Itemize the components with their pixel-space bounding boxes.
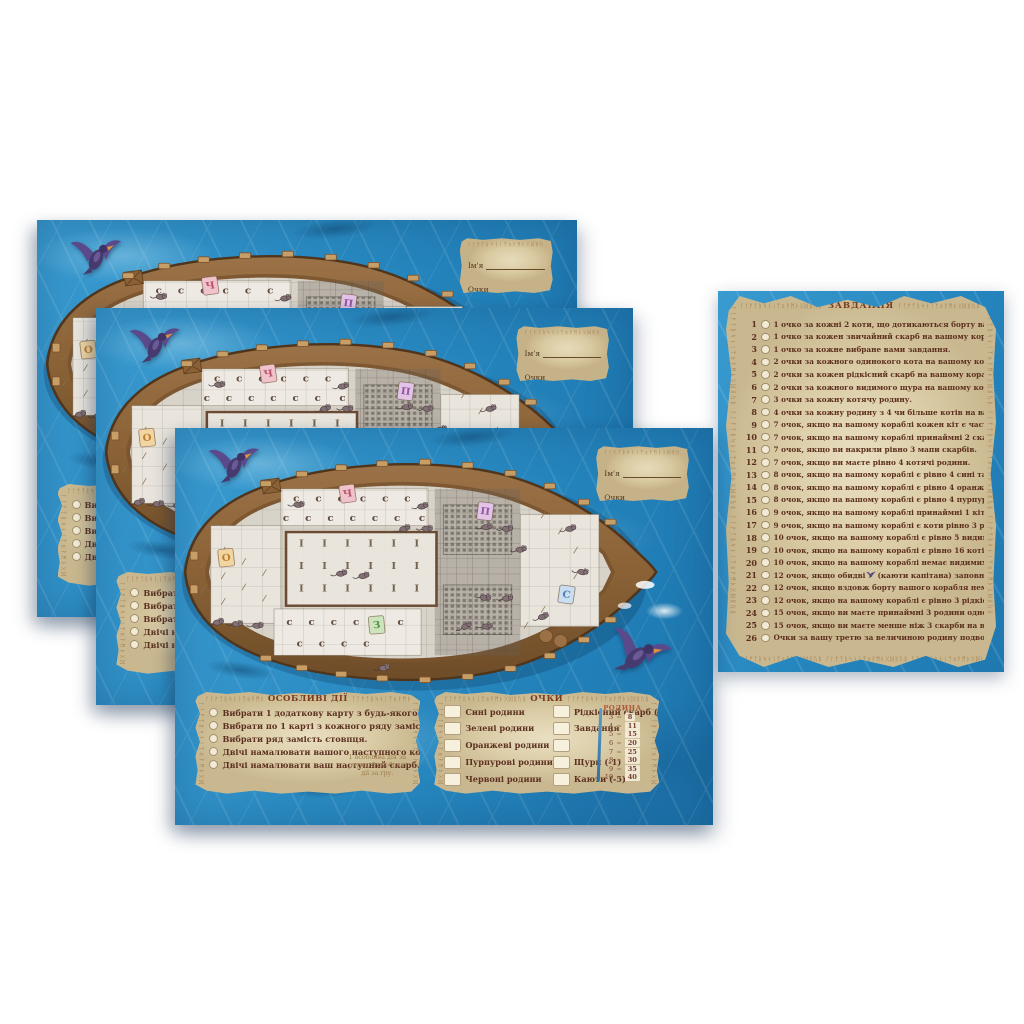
task-row: 148 очок, якщо на вашому кораблі є рівно… <box>742 481 984 494</box>
task-text: 8 очок, якщо на вашому кораблі є рівно 4… <box>774 483 985 492</box>
task-row: 73 очки за кожну котячу родину. <box>742 393 984 406</box>
task-number: 19 <box>742 545 757 555</box>
score-write-box[interactable] <box>444 722 461 735</box>
name-field-label: Ім'я <box>604 469 620 478</box>
task-checkbox[interactable] <box>761 483 770 492</box>
letter-tile-С: С <box>558 585 576 604</box>
rune-border: ᚴᛚᚠᛏᚱᛋᚾᛁᛉᛟᚹᛗᚦᚷᛞᛝᚢᛒ ᚴᛚᚠᛏᚱᛋᚾᛁᛉᛟᚹᛗᚦᚷᛞᛝᚢᛒ ᚴᛚ… <box>729 306 736 657</box>
action-bullet[interactable] <box>72 500 81 509</box>
task-text: 1 очко за кожне вибране вами завдання. <box>774 345 951 354</box>
svg-text:c: c <box>204 393 210 404</box>
svg-text:c: c <box>287 617 293 628</box>
svg-text:П: П <box>480 506 491 518</box>
player-board: //////////////////cccccccccccccccccccccc… <box>175 428 713 825</box>
svg-text:c: c <box>419 513 425 524</box>
name-score-box: ᚴᛚᚠᛏᚱᛋᚾᛁᛉᛟᚹᛗᚦᚷᛞᛝᚢᛒ Ім'я Очки <box>596 446 689 501</box>
svg-text:I: I <box>392 583 397 594</box>
task-number: 13 <box>742 470 757 480</box>
family-score-row: Сині родини <box>444 705 553 718</box>
svg-text:c: c <box>223 286 229 297</box>
svg-text:c: c <box>328 513 334 524</box>
bird-mascot-icon <box>207 446 261 486</box>
task-text: Очки за вашу третю за величиною родину п… <box>774 633 985 642</box>
task-text: 4 очки за кожну родину з 4 чи більше кот… <box>774 408 985 417</box>
name-field-label: Ім'я <box>524 349 540 358</box>
task-checkbox[interactable] <box>761 521 770 530</box>
letter-tile-О: О <box>139 428 156 447</box>
task-row: 84 очки за кожну родину з 4 чи більше ко… <box>742 406 984 419</box>
family-points: 35 <box>625 765 640 773</box>
equals-sign: = <box>616 739 622 747</box>
family-size: 9 <box>603 765 613 773</box>
family-size: 8 <box>603 756 613 764</box>
equals-sign: = <box>616 765 622 773</box>
action-bullet[interactable] <box>209 760 218 769</box>
task-text: 12 очок, якщо обидві (каюти капітана) за… <box>774 571 985 580</box>
svg-text:c: c <box>268 286 274 297</box>
svg-text:c: c <box>394 513 400 524</box>
tasks-parchment: ᚴᛚᚠᛏᚱᛋᚾᛁᛉᛟᚹᛗᚦᚷᛞᛝᚢᛒ ᚴᛚᚠᛏᚱᛋᚾᛁᛉᛟᚹᛗᚦᚷᛞᛝᚢᛒ ᚴᛚ… <box>726 296 996 667</box>
family-score-row: Пурпурові родини <box>444 756 553 769</box>
action-item: Вибрати 1 додаткову карту з будь-якого і… <box>209 706 406 719</box>
svg-text:c: c <box>271 393 277 404</box>
svg-text:c: c <box>297 639 303 650</box>
svg-text:c: c <box>382 494 388 505</box>
svg-text:Ч: Ч <box>263 368 274 380</box>
task-row: 169 очок, якщо на вашому кораблі принайм… <box>742 506 984 519</box>
action-bullet[interactable] <box>209 708 218 717</box>
task-checkbox[interactable] <box>761 395 770 404</box>
task-checkbox[interactable] <box>761 508 770 517</box>
rune-border: ᚴᛚᚠᛏᚱᛋᚾᛁᛉᛟᚹᛗᚦᚷᛞᛝᚢᛒ ᚴᛚᚠᛏᚱᛋᚾᛁᛉᛟᚹᛗᚦᚷᛞᛝᚢᛒ ᚴᛚ… <box>740 656 982 663</box>
family-row-label: Зелені родини <box>465 723 534 733</box>
action-item: Вибрати по 1 карті з кожного ряду заміст… <box>209 719 406 732</box>
letter-tile-Ч: Ч <box>260 364 278 383</box>
score-write-box[interactable] <box>553 739 570 752</box>
svg-text:c: c <box>316 494 322 505</box>
equals-sign: = <box>616 756 622 764</box>
svg-text:c: c <box>331 617 337 628</box>
task-row: 2312 очок, якщо на вашому кораблі є рівн… <box>742 594 984 607</box>
task-number: 4 <box>742 357 757 367</box>
task-row: 2415 очок, якщо ви маєте принаймні 3 род… <box>742 607 984 620</box>
svg-text:Ч: Ч <box>343 488 354 500</box>
letter-tile-Ч: Ч <box>339 484 357 503</box>
special-actions-note: 1 особлива дія за раунд, 3 особливі дії … <box>346 754 408 778</box>
task-text: 15 очок, якщо ви маєте принаймні 3 родин… <box>774 608 985 617</box>
special-actions-panel: ᚴᛚᚠᛏᚱᛋᚾᛁᛉᛟᚹᛗᚦᚷᛞᛝᚢᛒ ᚴᛚᚠᛏᚱᛋᚾᛁᛉᛟᚹᛗᚦᚷᛞᛝᚢᛒ ОС… <box>195 692 420 794</box>
task-checkbox[interactable] <box>761 345 770 354</box>
letter-tile-О: О <box>80 340 97 359</box>
task-text: 2 очки за кожного видимого щура на вашом… <box>774 383 985 392</box>
family-table-row: 3=8 <box>603 713 653 722</box>
score-write-box[interactable] <box>444 773 461 786</box>
task-row: 1810 очок, якщо на вашому кораблі є рівн… <box>742 531 984 544</box>
name-field-line[interactable] <box>486 260 544 270</box>
svg-text:c: c <box>372 513 378 524</box>
svg-text:c: c <box>248 393 254 404</box>
task-text: 10 очок, якщо на вашому кораблі немає ви… <box>774 558 985 567</box>
points-title: ОЧКИ <box>530 694 563 704</box>
special-actions-title: ОСОБЛИВІ ДІЇ <box>268 694 348 704</box>
task-number: 2 <box>742 332 757 342</box>
svg-text:c: c <box>360 494 366 505</box>
svg-text:П: П <box>400 386 411 398</box>
svg-text:c: c <box>293 393 299 404</box>
bird-mascot-icon <box>866 571 876 579</box>
task-row: 21 очко за кожен звичайний скарб на вашо… <box>742 331 984 344</box>
task-text: 8 очок, якщо на вашому кораблі є рівно 4… <box>774 470 985 479</box>
svg-text:I: I <box>322 561 327 572</box>
action-bullet[interactable] <box>130 640 139 649</box>
family-size: 5 <box>603 730 613 738</box>
name-field-label: Ім'я <box>468 261 484 270</box>
svg-text:З: З <box>373 620 381 631</box>
task-checkbox[interactable] <box>761 433 770 442</box>
task-checkbox[interactable] <box>761 420 770 429</box>
task-text: 7 очок, якщо на вашому кораблі принаймні… <box>774 433 985 442</box>
family-score-row: Оранжеві родини <box>444 739 553 752</box>
family-row-label: Оранжеві родини <box>465 740 549 750</box>
task-number: 3 <box>742 344 757 354</box>
task-row: 42 очки за кожного одинокого кота на ваш… <box>742 356 984 369</box>
svg-text:I: I <box>369 583 374 594</box>
score-write-box[interactable] <box>553 756 570 769</box>
task-text: 1 очко за кожен звичайний скарб на вашом… <box>774 332 985 341</box>
tasks-list: 11 очко за кожні 2 коти, що дотикаються … <box>742 318 984 644</box>
task-text: 9 очок, якщо на вашому кораблі є коти рі… <box>774 521 985 530</box>
task-row: 117 очок, якщо ви накрили рівно 3 мапи с… <box>742 443 984 456</box>
family-score-row: Зелені родини <box>444 722 553 735</box>
task-text: 12 очок, якщо вздовж борту вашого корабл… <box>774 583 985 592</box>
rune-border: ᚴᛚᚠᛏᚱᛋᚾᛁᛉᛟᚹᛗᚦᚷᛞᛝᚢᛒ ᚴᛚᚠᛏᚱᛋᚾᛁᛉᛟᚹᛗᚦᚷᛞᛝᚢᛒ <box>567 696 649 703</box>
rune-border: ᚴᛚᚠᛏᚱᛋᚾᛁᛉᛟᚹᛗᚦᚷᛞᛝᚢᛒ ᚴᛚᚠᛏᚱᛋᚾᛁᛉᛟᚹᛗᚦᚷᛞᛝᚢᛒ ᚴᛚ… <box>898 303 982 310</box>
score-write-box[interactable] <box>444 739 461 752</box>
task-checkbox[interactable] <box>761 370 770 379</box>
rune-border: ᚴᛚᚠᛏᚱᛋᚾᛁᛉᛟᚹᛗᚦᚷᛞᛝᚢᛒ ᚴᛚᚠᛏᚱᛋᚾᛁᛉᛟᚹᛗᚦᚷᛞᛝᚢᛒ <box>444 696 526 703</box>
letter-tile-З: З <box>369 615 386 634</box>
task-checkbox[interactable] <box>761 320 770 329</box>
svg-text:c: c <box>281 374 287 385</box>
task-row: 2212 очок, якщо вздовж борту вашого кора… <box>742 581 984 594</box>
svg-text:c: c <box>283 513 289 524</box>
family-table-row: 9=35 <box>603 765 653 774</box>
family-points: 25 <box>625 748 640 756</box>
svg-text:I: I <box>299 539 304 550</box>
action-bullet[interactable] <box>130 627 139 636</box>
svg-text:I: I <box>369 539 374 550</box>
ship-illustration: //////////////////cccccccccccccccccccccc… <box>180 452 659 692</box>
score-write-box[interactable] <box>553 773 570 786</box>
svg-text:I: I <box>392 561 397 572</box>
name-field-line[interactable] <box>623 468 681 478</box>
family-table-row: 8=30 <box>603 756 653 765</box>
task-checkbox[interactable] <box>761 496 770 505</box>
name-field-line[interactable] <box>543 348 601 358</box>
score-write-box[interactable] <box>553 722 570 735</box>
svg-text:I: I <box>346 583 351 594</box>
task-row: 2112 очок, якщо обидві (каюти капітана) … <box>742 569 984 582</box>
task-number: 7 <box>742 395 757 405</box>
family-points: 15 <box>625 730 640 738</box>
task-checkbox[interactable] <box>761 471 770 480</box>
svg-text:c: c <box>236 374 242 385</box>
svg-text:I: I <box>322 539 327 550</box>
task-text: 12 очок, якщо на вашому кораблі є рівно … <box>774 596 985 605</box>
equals-sign: = <box>616 722 622 730</box>
task-number: 20 <box>742 558 757 568</box>
svg-text:I: I <box>322 583 327 594</box>
task-checkbox[interactable] <box>761 358 770 367</box>
action-bullet[interactable] <box>72 539 81 548</box>
svg-text:c: c <box>306 513 312 524</box>
action-bullet[interactable] <box>209 747 218 756</box>
svg-text:c: c <box>341 639 347 650</box>
product-photo-stage: //////////////////cccccccccccccccccccccc… <box>0 0 1024 1024</box>
action-label: Вибрати ряд замість стовпця. <box>222 734 367 744</box>
task-number: 9 <box>742 420 757 430</box>
family-table-title: РОДИНА <box>603 704 653 712</box>
bird-mascot-icon <box>128 326 182 366</box>
action-item: Вибрати ряд замість стовпця. <box>209 732 406 745</box>
task-checkbox[interactable] <box>761 571 770 580</box>
task-row: 26Очки за вашу третю за величиною родину… <box>742 632 984 645</box>
action-bullet[interactable] <box>209 721 218 730</box>
svg-text:c: c <box>315 393 321 404</box>
family-size: 7 <box>603 748 613 756</box>
family-table-row: 6=20 <box>603 739 653 748</box>
family-table-row: 4=11 <box>603 722 653 731</box>
letter-tile-Ч: Ч <box>202 276 220 295</box>
svg-text:c: c <box>353 617 359 628</box>
rune-border: ᚴᛚᚠᛏᚱᛋᚾᛁᛉᛟᚹᛗᚦᚷᛞᛝᚢᛒ ᚴᛚᚠᛏᚱᛋᚾᛁᛉᛟᚹᛗᚦᚷᛞᛝᚢᛒ <box>352 696 410 703</box>
svg-text:c: c <box>350 513 356 524</box>
task-row: 52 очки за кожен рідкісний скарб на вашо… <box>742 368 984 381</box>
task-text: 9 очок, якщо на вашому кораблі принаймні… <box>774 508 985 517</box>
task-number: 16 <box>742 507 757 517</box>
task-number: 23 <box>742 595 757 605</box>
task-row: 2515 очок, якщо ви маєте менше ніж 3 ска… <box>742 619 984 632</box>
task-row: 11 очко за кожні 2 коти, що дотикаються … <box>742 318 984 331</box>
svg-text:c: c <box>325 374 331 385</box>
letter-tile-П: П <box>477 501 495 520</box>
svg-text:c: c <box>226 393 232 404</box>
task-number: 17 <box>742 520 757 530</box>
svg-text:c: c <box>245 286 251 297</box>
rune-border: ᚴᛚᚠᛏᚱᛋᚾᛁᛉᛟᚹᛗᚦᚷᛞᛝᚢᛒ ᚴᛚᚠᛏᚱᛋᚾᛁᛉᛟᚹᛗᚦᚷᛞᛝᚢᛒ <box>205 696 263 703</box>
task-row: 2010 очок, якщо на вашому кораблі немає … <box>742 556 984 569</box>
letter-tile-П: П <box>397 381 415 400</box>
family-score-row: Червоні родини <box>444 773 553 786</box>
task-number: 6 <box>742 382 757 392</box>
svg-text:c: c <box>319 639 325 650</box>
task-number: 15 <box>742 495 757 505</box>
family-points: 20 <box>625 739 640 747</box>
task-number: 11 <box>742 445 757 455</box>
task-text: 7 очок, якщо ви накрили рівно 3 мапи ска… <box>774 445 977 454</box>
task-number: 24 <box>742 608 757 618</box>
svg-text:c: c <box>340 393 346 404</box>
action-bullet[interactable] <box>130 614 139 623</box>
family-row-label: Пурпурові родини <box>465 757 553 767</box>
family-row-label: Червоні родини <box>465 774 541 784</box>
task-checkbox[interactable] <box>761 609 770 618</box>
svg-text:I: I <box>299 583 304 594</box>
action-bullet[interactable] <box>130 588 139 597</box>
task-checkbox[interactable] <box>761 533 770 542</box>
task-number: 22 <box>742 583 757 593</box>
svg-text:I: I <box>415 539 420 550</box>
bow-foam <box>638 599 692 623</box>
task-text: 8 очок, якщо на вашому кораблі є рівно 4… <box>774 495 985 504</box>
score-write-box[interactable] <box>553 705 570 718</box>
family-table-row: 7=25 <box>603 747 653 756</box>
family-size-table: РОДИНА 3=84=115=156=207=258=309=3510=40 <box>603 704 653 782</box>
family-size: 4 <box>603 722 613 730</box>
family-table-row: 10=40 <box>603 773 653 782</box>
task-row: 1910 очок, якщо на вашому кораблі є рівн… <box>742 544 984 557</box>
score-write-box[interactable] <box>444 756 461 769</box>
name-score-box: ᚴᛚᚠᛏᚱᛋᚾᛁᛉᛟᚹᛗᚦᚷᛞᛝᚢᛒ Ім'я Очки <box>460 238 553 293</box>
task-number: 12 <box>742 457 757 467</box>
svg-text:c: c <box>178 286 184 297</box>
score-write-box[interactable] <box>444 705 461 718</box>
action-bullet[interactable] <box>209 734 218 743</box>
svg-text:I: I <box>415 583 420 594</box>
task-row: 31 очко за кожне вибране вами завдання. <box>742 343 984 356</box>
action-bullet[interactable] <box>72 513 81 522</box>
svg-text:О: О <box>143 433 153 444</box>
task-text: 1 очко за кожні 2 коти, що дотикаються б… <box>774 320 985 329</box>
svg-text:I: I <box>346 539 351 550</box>
family-row-label: Сині родини <box>465 707 524 717</box>
svg-text:c: c <box>309 617 315 628</box>
task-text: 2 очки за кожен рідкісний скарб на вашом… <box>774 370 985 379</box>
task-number: 5 <box>742 369 757 379</box>
family-size: 10 <box>603 773 613 781</box>
svg-text:c: c <box>398 617 404 628</box>
task-text: 15 очок, якщо ви маєте менше ніж 3 скарб… <box>774 621 985 630</box>
task-checkbox[interactable] <box>761 596 770 605</box>
family-points: 8 <box>625 713 636 721</box>
task-checkbox[interactable] <box>761 445 770 454</box>
rune-border: ᚴᛚᚠᛏᚱᛋᚾᛁᛉᛟᚹᛗᚦᚷᛞᛝᚢᛒ ᚴᛚᚠᛏᚱᛋᚾᛁᛉᛟᚹᛗᚦᚷᛞᛝᚢᛒ ᚴᛚ… <box>740 303 824 310</box>
rune-border: ᚴᛚᚠᛏᚱᛋᚾᛁᛉᛟᚹᛗᚦᚷᛞᛝᚢᛒ <box>468 242 545 248</box>
points-panel: ᚴᛚᚠᛏᚱᛋᚾᛁᛉᛟᚹᛗᚦᚷᛞᛝᚢᛒ ᚴᛚᚠᛏᚱᛋᚾᛁᛉᛟᚹᛗᚦᚷᛞᛝᚢᛒ ОЧ… <box>434 692 659 794</box>
svg-text:О: О <box>84 345 94 356</box>
svg-text:c: c <box>303 374 309 385</box>
family-size: 6 <box>603 739 613 747</box>
svg-text:I: I <box>415 561 420 572</box>
task-row: 138 очок, якщо на вашому кораблі є рівно… <box>742 469 984 482</box>
equals-sign: = <box>616 773 622 781</box>
action-bullet[interactable] <box>130 601 139 610</box>
svg-text:I: I <box>392 539 397 550</box>
task-checkbox[interactable] <box>761 634 770 643</box>
task-number: 18 <box>742 533 757 543</box>
task-text: 3 очки за кожну котячу родину. <box>774 395 912 404</box>
family-size: 3 <box>603 713 613 721</box>
task-text: 10 очок, якщо на вашому кораблі є рівно … <box>774 546 985 555</box>
task-number: 26 <box>742 633 757 643</box>
svg-text:I: I <box>299 561 304 572</box>
svg-text:Ч: Ч <box>205 280 216 292</box>
task-number: 10 <box>742 432 757 442</box>
family-points: 11 <box>625 722 640 730</box>
task-text: 10 очок, якщо на вашому кораблі є рівно … <box>774 533 985 542</box>
task-checkbox[interactable] <box>761 584 770 593</box>
name-score-box: ᚴᛚᚠᛏᚱᛋᚾᛁᛉᛟᚹᛗᚦᚷᛞᛝᚢᛒ Ім'я Очки <box>516 326 608 381</box>
task-number: 14 <box>742 482 757 492</box>
task-row: 62 очки за кожного видимого щура на вашо… <box>742 381 984 394</box>
task-number: 25 <box>742 620 757 630</box>
bird-mascot-icon <box>69 238 123 278</box>
svg-text:С: С <box>562 589 572 601</box>
task-checkbox[interactable] <box>761 333 770 342</box>
family-score-rows: Сині родиниЗелені родиниОранжеві родиниП… <box>444 705 553 786</box>
equals-sign: = <box>616 730 622 738</box>
task-checkbox[interactable] <box>761 621 770 630</box>
task-number: 8 <box>742 407 757 417</box>
svg-text:О: О <box>222 553 232 564</box>
equals-sign: = <box>616 748 622 756</box>
tasks-title: ЗАВДАННЯ <box>828 301 894 311</box>
task-checkbox[interactable] <box>761 458 770 467</box>
svg-text:c: c <box>405 494 411 505</box>
task-checkbox[interactable] <box>761 408 770 417</box>
task-row: 179 очок, якщо на вашому кораблі є коти … <box>742 519 984 532</box>
task-row: 107 очок, якщо на вашому кораблі принайм… <box>742 431 984 444</box>
rune-border: ᚴᛚᚠᛏᚱᛋᚾᛁᛉᛟᚹᛗᚦᚷᛞᛝᚢᛒ ᚴᛚᚠᛏᚱᛋᚾᛁᛉᛟᚹᛗᚦᚷᛞᛝᚢᛒ ᚴᛚ… <box>986 306 993 657</box>
task-row: 127 очок, якщо ви маєте рівно 4 котячі р… <box>742 456 984 469</box>
family-points: 40 <box>625 773 640 781</box>
letter-tile-О: О <box>218 548 235 567</box>
action-bullet[interactable] <box>72 526 81 535</box>
task-row: 97 очок, якщо на вашому кораблі кожен кі… <box>742 418 984 431</box>
rune-border: ᚴᛚᚠᛏᚱᛋᚾᛁᛉᛟᚹᛗᚦᚷᛞᛝᚢᛒ <box>524 330 600 336</box>
equals-sign: = <box>616 713 622 721</box>
tasks-reference-card: ᚴᛚᚠᛏᚱᛋᚾᛁᛉᛟᚹᛗᚦᚷᛞᛝᚢᛒ ᚴᛚᚠᛏᚱᛋᚾᛁᛉᛟᚹᛗᚦᚷᛞᛝᚢᛒ ᚴᛚ… <box>718 291 1004 672</box>
family-table-row: 5=15 <box>603 730 653 739</box>
svg-text:I: I <box>369 561 374 572</box>
family-points: 30 <box>625 756 640 764</box>
task-text: 2 очки за кожного одинокого кота на вашо… <box>774 357 985 366</box>
svg-text:c: c <box>364 639 370 650</box>
rune-border: ᚴᛚᚠᛏᚱᛋᚾᛁᛉᛟᚹᛗᚦᚷᛞᛝᚢᛒ <box>604 450 681 456</box>
task-checkbox[interactable] <box>761 383 770 392</box>
task-text: 7 очок, якщо ви маєте рівно 4 котячі род… <box>774 458 971 467</box>
task-row: 158 очок, якщо на вашому кораблі є рівно… <box>742 494 984 507</box>
task-text: 7 очок, якщо на вашому кораблі кожен кіт… <box>774 420 985 429</box>
task-checkbox[interactable] <box>761 558 770 567</box>
action-bullet[interactable] <box>72 552 81 561</box>
task-number: 21 <box>742 570 757 580</box>
task-number: 1 <box>742 319 757 329</box>
task-checkbox[interactable] <box>761 546 770 555</box>
